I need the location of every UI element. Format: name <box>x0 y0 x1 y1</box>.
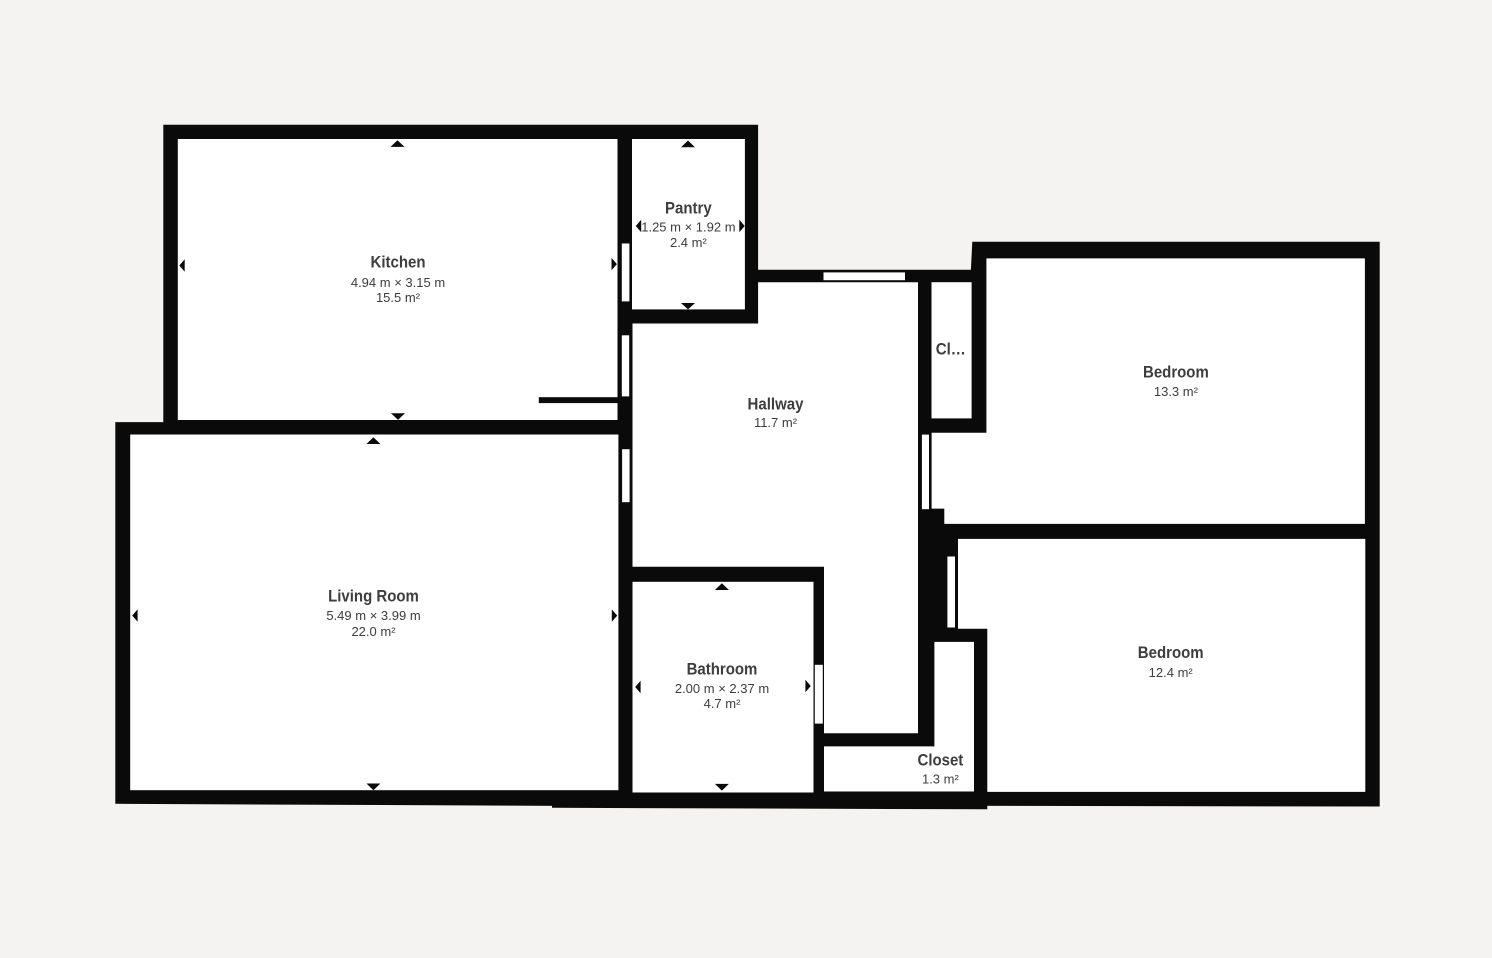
svg-text:Closet: Closet <box>918 751 964 770</box>
svg-text:Kitchen: Kitchen <box>371 253 426 272</box>
svg-text:2.4 m²: 2.4 m² <box>670 235 708 250</box>
svg-text:5.49 m × 3.99 m: 5.49 m × 3.99 m <box>326 608 420 623</box>
svg-text:Pantry: Pantry <box>665 198 712 217</box>
svg-text:Bathroom: Bathroom <box>687 660 758 679</box>
svg-text:Hallway: Hallway <box>748 395 804 414</box>
svg-text:2.00 m × 2.37 m: 2.00 m × 2.37 m <box>675 681 769 696</box>
svg-text:1.25 m × 1.92 m: 1.25 m × 1.92 m <box>641 219 735 234</box>
svg-text:4.94 m × 3.15 m: 4.94 m × 3.15 m <box>351 275 445 290</box>
svg-text:11.7 m²: 11.7 m² <box>754 415 798 430</box>
svg-text:13.3 m²: 13.3 m² <box>1154 384 1199 399</box>
svg-text:Bedroom: Bedroom <box>1143 362 1209 381</box>
svg-text:15.5 m²: 15.5 m² <box>376 290 421 305</box>
svg-text:1.3 m²: 1.3 m² <box>922 772 960 787</box>
svg-text:Bedroom: Bedroom <box>1138 643 1204 662</box>
svg-text:12.4 m²: 12.4 m² <box>1149 665 1194 680</box>
svg-text:4.7 m²: 4.7 m² <box>704 696 742 711</box>
svg-text:Cl…: Cl… <box>936 340 966 359</box>
svg-text:22.0 m²: 22.0 m² <box>351 624 396 639</box>
svg-text:Living Room: Living Room <box>328 587 419 606</box>
